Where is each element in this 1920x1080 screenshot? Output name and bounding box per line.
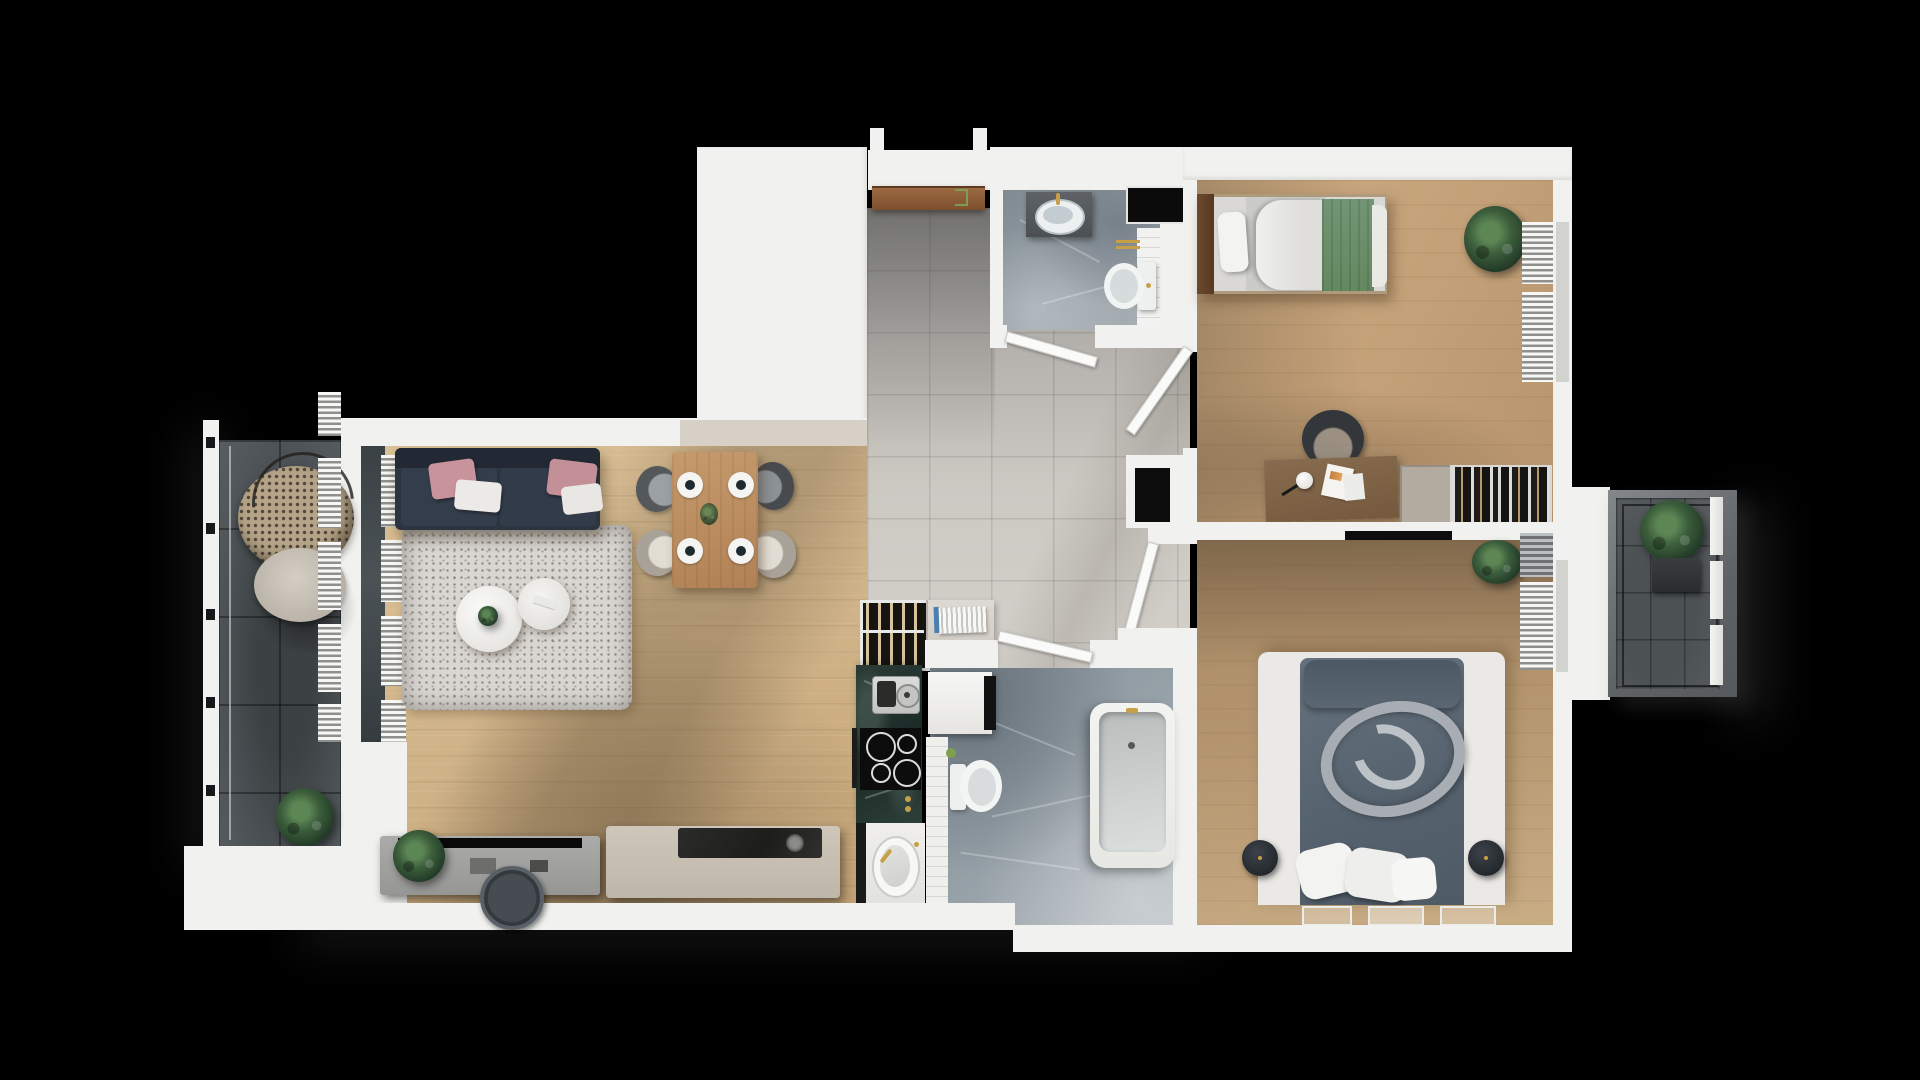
balcony-wall-blinds: [318, 458, 341, 528]
wc-sink-inner: [1043, 206, 1073, 224]
kitchen-sink-basin-inner: [880, 845, 910, 887]
cooktop-burner: [893, 759, 921, 787]
counter-knob: [905, 806, 911, 812]
bathroom-tiled-strip: [926, 737, 948, 905]
floor-mat-2: [1368, 906, 1424, 926]
entrance-door: [872, 186, 985, 210]
bathtub-faucet: [1126, 708, 1138, 713]
bed2-pillow-white-3: [1390, 856, 1437, 902]
bedroom1-wall-upper: [1183, 180, 1197, 352]
bedroom2-blinds: [1520, 582, 1553, 670]
pouf-right-button: [1484, 856, 1488, 860]
bedroom2-door-stub: [1148, 524, 1197, 544]
cooktop-burner: [871, 763, 891, 783]
wc-bottom-wall-right: [1095, 325, 1195, 348]
pouf-left-button: [1258, 856, 1262, 860]
bathroom-cup: [946, 748, 956, 758]
balcony-wall-blinds: [318, 624, 341, 692]
balcony-wall-blinds: [318, 704, 341, 742]
right-balcony-slat-panel: [1710, 497, 1723, 555]
balcony-rail-line: [229, 446, 231, 840]
coffee-machine-dial-center: [904, 692, 910, 698]
bathroom-top-wall-left: [925, 640, 998, 668]
entry-threshold: [868, 150, 990, 190]
oven-handle: [852, 728, 857, 788]
console-item: [530, 860, 548, 872]
shelf-book-blue: [934, 607, 940, 633]
bedroom1-cabinet: [1400, 465, 1452, 526]
living-blinds-4: [381, 700, 406, 742]
wc-towel-bar: [1116, 240, 1140, 243]
living-top-wall-shade: [680, 420, 867, 446]
balcony-wall-blinds: [318, 542, 341, 610]
top-wall-right-section: [1183, 147, 1572, 180]
counter-knob: [905, 796, 911, 802]
bedroom2-plant: [1472, 540, 1522, 584]
dining-centerpiece: [700, 503, 718, 525]
bedroom1-blinds-1: [1522, 222, 1553, 284]
entrance-door-hook: [955, 189, 968, 206]
sofa-pillow-white-right: [560, 483, 603, 516]
place-setting: [677, 472, 703, 498]
hallway-shadow: [867, 208, 995, 448]
floor-mat-3: [1440, 906, 1496, 926]
entry-wall-mass: [697, 147, 867, 446]
island-sink: [786, 834, 804, 852]
right-balcony-planter: [1652, 558, 1700, 592]
coffee-machine-hopper: [877, 681, 896, 707]
balcony-post: [206, 523, 215, 534]
bed1-duvet-fold: [1256, 200, 1328, 290]
right-balcony-slat-panel: [1710, 561, 1723, 619]
balcony-post: [206, 785, 215, 796]
bottom-left-slab: [184, 846, 360, 930]
bed2-pillow-top: [1304, 660, 1460, 708]
bottom-wall-right: [1013, 925, 1570, 952]
sofa-pillow-white-left: [454, 479, 502, 513]
place-setting: [677, 538, 703, 564]
entry-post-right: [973, 128, 987, 154]
utility-niche: [1135, 468, 1170, 522]
right-balcony-plant: [1640, 500, 1704, 562]
console-plant: [393, 830, 445, 882]
desk-lamp-shade: [1296, 472, 1313, 489]
wc-toilet-seat: [1110, 269, 1138, 303]
kitchen-sink-handle: [914, 842, 919, 847]
cooktop-burner: [897, 734, 917, 754]
wc-toilet-button: [1146, 283, 1151, 288]
round-rug: [480, 866, 544, 930]
shelf-books: [938, 606, 987, 634]
floorplan-scene: Top-down 3D rendered apartment floor pla…: [0, 0, 1920, 1080]
balcony-post: [206, 437, 215, 448]
place-setting: [728, 472, 754, 498]
balcony-wall-blinds: [318, 392, 341, 436]
balcony-plant: [276, 788, 334, 846]
place-setting: [728, 538, 754, 564]
bathroom-mirror: [984, 676, 996, 730]
wc-faucet: [1056, 193, 1060, 205]
bathtub-drain: [1128, 742, 1135, 749]
wardrobe: [1450, 465, 1552, 526]
wc-towel-bar: [1116, 246, 1140, 249]
right-balcony-connector: [1568, 487, 1610, 700]
desk-papers2: [1343, 473, 1366, 501]
bathroom-bedroom-wall: [1173, 655, 1197, 925]
coffee-table-plant: [478, 606, 498, 626]
bed1-headboard: [1197, 194, 1214, 294]
bathtub-basin: [1099, 712, 1166, 852]
bed1-sheet-end: [1372, 205, 1387, 287]
wardrobe-divider: [1498, 465, 1501, 522]
bed1-pillow: [1217, 211, 1249, 273]
right-balcony-slat-panel: [1710, 625, 1723, 685]
wine-rack: [860, 600, 932, 671]
bedroom1-blinds-2: [1522, 292, 1553, 382]
balcony-post: [206, 697, 215, 708]
bedroom1-plant: [1464, 206, 1526, 272]
wine-rack-shelf-divider: [862, 630, 924, 633]
bottom-wall-left: [341, 903, 1015, 930]
floor-mat-1: [1302, 906, 1352, 926]
bed1-blanket-green: [1322, 199, 1374, 291]
balcony-left-slab: [203, 420, 219, 906]
bathroom-vanity: [928, 672, 992, 734]
kitchen-sink-side-panel: [856, 823, 866, 905]
right-wall-window-gap: [1556, 222, 1569, 382]
entry-post-left: [870, 128, 884, 154]
bedroom2-radiator: [1520, 533, 1553, 577]
balcony-post: [206, 609, 215, 620]
wc-top-wall: [995, 147, 1160, 190]
bathroom-toilet-seat: [968, 768, 996, 806]
wc-appliance-niche: [1126, 186, 1187, 224]
cooktop-burner: [866, 732, 896, 762]
